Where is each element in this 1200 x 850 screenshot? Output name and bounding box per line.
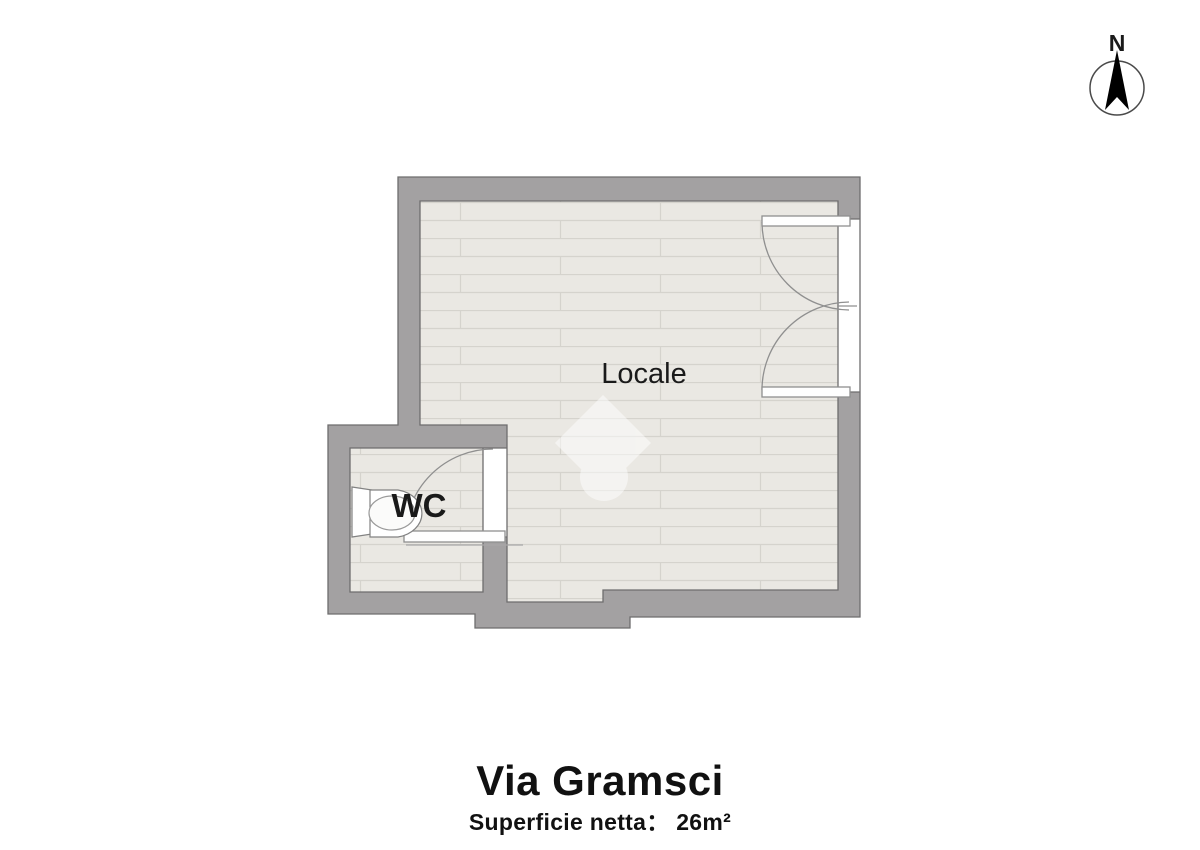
entry-door-leaf-top — [762, 216, 850, 226]
locale-label: Locale — [601, 358, 686, 390]
plan-title: Via Gramsci — [0, 761, 1200, 801]
floorplan-page: Locale WC N Via Gramsci Superficie netta… — [0, 0, 1200, 850]
north-arrow-icon — [1105, 50, 1129, 110]
wc-door-leaf — [404, 531, 505, 542]
floorplan-drawing: Locale WC N — [0, 0, 1200, 850]
compass: N — [1090, 30, 1144, 115]
plan-subtitle: Superficie netta： 26m² — [0, 803, 1200, 837]
wc-label: WC — [392, 487, 447, 524]
plan-footer: Via Gramsci Superficie netta： 26m² — [0, 761, 1200, 837]
entry-door-leaf-bottom — [762, 387, 850, 397]
